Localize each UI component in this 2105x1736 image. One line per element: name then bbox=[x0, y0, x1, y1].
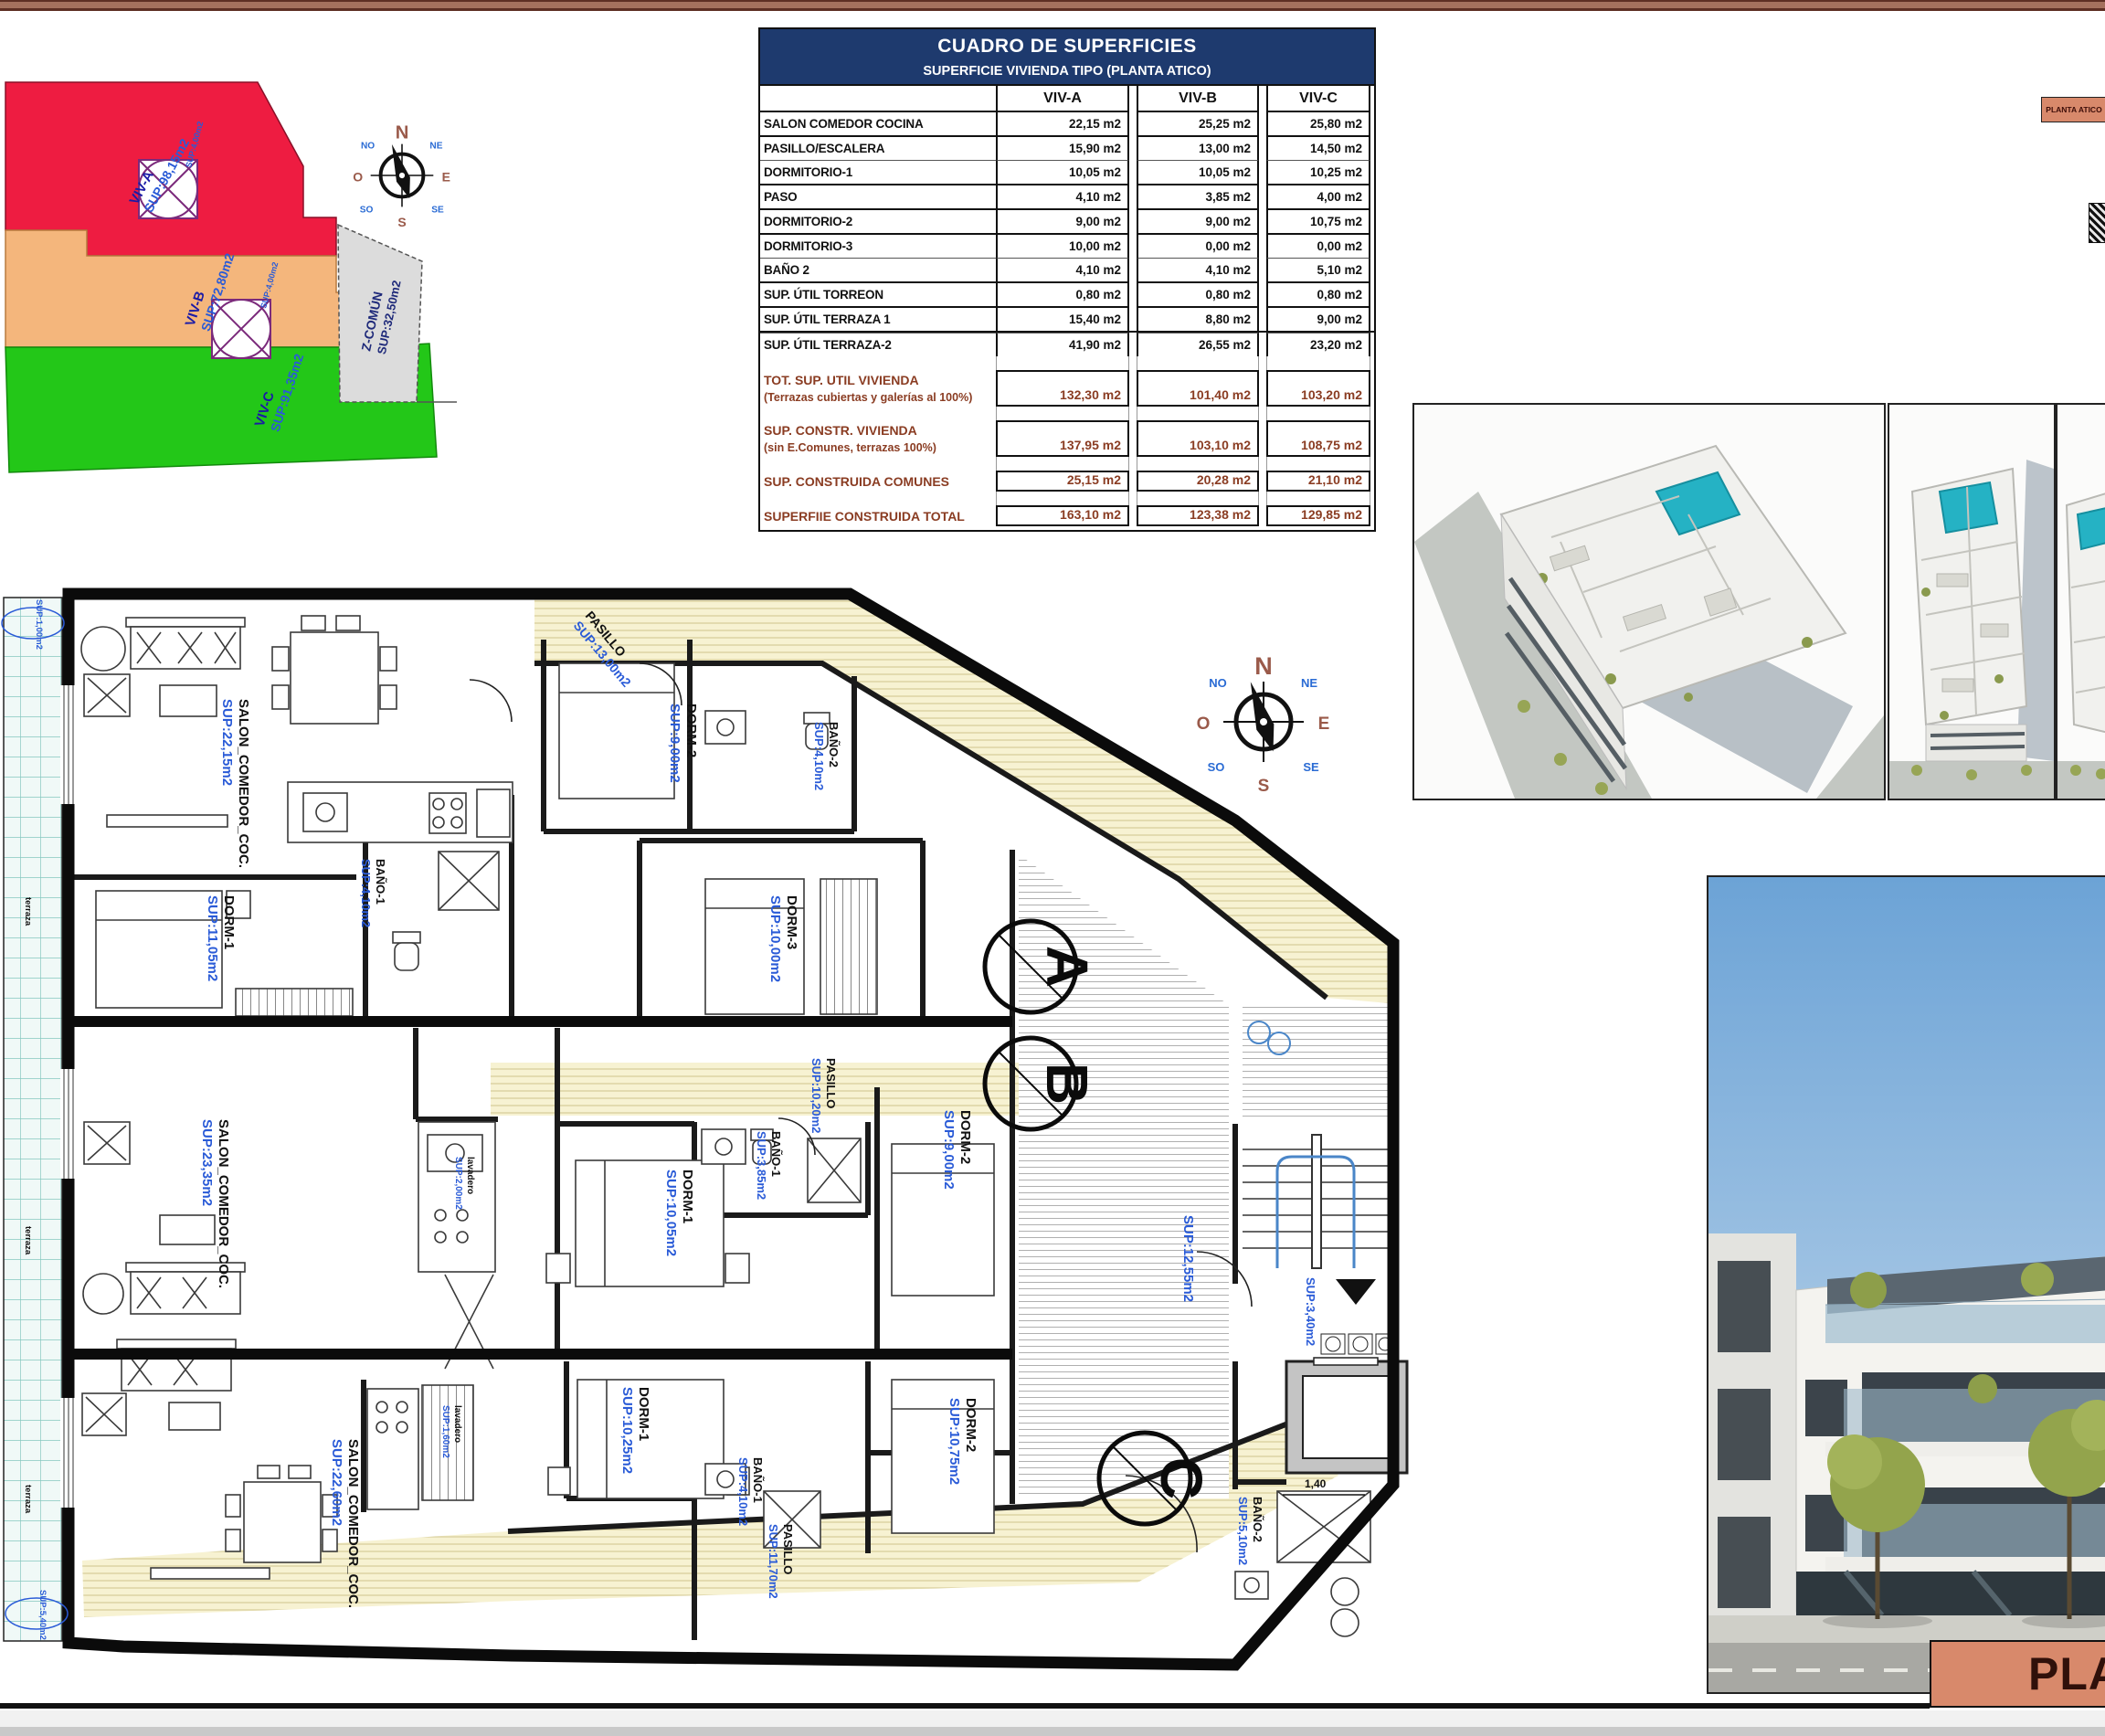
table-row: SALON COMEDOR COCINA22,15 m225,25 m225,8… bbox=[760, 111, 1374, 135]
room-sup: SUP:10,00m2 bbox=[767, 895, 783, 982]
room-sup: SUP:10,75m2 bbox=[947, 1398, 962, 1485]
table-subtitle: SUPERFICIE VIVIENDA TIPO (PLANTA ATICO) bbox=[764, 64, 1370, 79]
room-name: BAÑO-1 bbox=[751, 1457, 765, 1503]
compass-s: S bbox=[1258, 777, 1270, 796]
storefront bbox=[1796, 1572, 2105, 1615]
render-aerial-3-art bbox=[2057, 405, 2105, 799]
summary-val-a: 137,95 m2 bbox=[996, 420, 1129, 457]
row-val-c: 4,00 m2 bbox=[1266, 184, 1370, 208]
summary-val-b: 103,10 m2 bbox=[1137, 420, 1259, 457]
row-val-c: 0,80 m2 bbox=[1266, 281, 1370, 306]
site-key-plan: VIV-A SUP:98,15m2 VIV-B SUP:72,80m2 VIV-… bbox=[0, 73, 512, 484]
terraza-label: terraza bbox=[23, 1226, 33, 1255]
compass-e: E bbox=[442, 169, 450, 184]
room-sup: SUP:11,05m2 bbox=[205, 895, 220, 981]
table-spacer bbox=[760, 457, 1374, 471]
render-aerial-2-art bbox=[1889, 405, 2054, 799]
room-name: BAÑO-2 bbox=[827, 722, 841, 767]
row-val-b: 0,00 m2 bbox=[1137, 233, 1259, 258]
terraza-label: terraza bbox=[23, 897, 33, 926]
room-sup: SUP:22,15m2 bbox=[219, 699, 235, 786]
compass-ne: NE bbox=[429, 141, 442, 151]
stair-down-arrow-icon bbox=[1336, 1279, 1376, 1305]
elevator-door bbox=[1314, 1358, 1378, 1365]
marker-b: B bbox=[1034, 1063, 1100, 1105]
room-sup: SUP:22,60m2 bbox=[329, 1439, 344, 1526]
row-label: DORMITORIO-1 bbox=[760, 160, 996, 184]
room-sup: SUP:2,00m2 bbox=[453, 1157, 463, 1210]
marker-a: A bbox=[1034, 946, 1100, 988]
table-spacer bbox=[760, 407, 1374, 420]
room-sup: SUP:10,25m2 bbox=[619, 1387, 635, 1474]
room-name: BAÑO-1 bbox=[374, 859, 387, 905]
table-title: CUADRO DE SUPERFICIES bbox=[764, 36, 1370, 58]
hatch-legend-chip bbox=[2089, 203, 2105, 243]
summary-label: SUPERFIIE CONSTRUIDA TOTAL bbox=[760, 505, 996, 526]
compass-so: SO bbox=[1208, 760, 1225, 774]
bottom-rule bbox=[0, 1703, 1930, 1709]
summary-val-a: 25,15 m2 bbox=[996, 471, 1129, 492]
row-val-a: 10,00 m2 bbox=[996, 233, 1129, 258]
row-val-b: 26,55 m2 bbox=[1137, 333, 1259, 356]
col-viv-b: VIV-B bbox=[1137, 86, 1259, 111]
summary-label-main: SUP. CONSTR. VIVIENDA bbox=[764, 423, 917, 438]
row-val-b: 9,00 m2 bbox=[1137, 208, 1259, 233]
summary-val-c: 103,20 m2 bbox=[1266, 370, 1370, 407]
row-val-a: 4,10 m2 bbox=[996, 184, 1129, 208]
room-sup: SUP:11,70m2 bbox=[767, 1524, 780, 1599]
room-name: BAÑO-1 bbox=[769, 1131, 783, 1177]
terrace-sup: SUP:5,40m2 bbox=[37, 1590, 48, 1640]
table-row: BAÑO 24,10 m24,10 m25,10 m2 bbox=[760, 258, 1374, 281]
compass-se: SE bbox=[431, 206, 444, 216]
terrace-sup: SUP:1,00m2 bbox=[34, 599, 44, 650]
surfaces-table: CUADRO DE SUPERFICIES SUPERFICIE VIVIEND… bbox=[758, 27, 1376, 532]
row-val-c: 23,20 m2 bbox=[1266, 333, 1370, 356]
row-val-c: 10,75 m2 bbox=[1266, 208, 1370, 233]
summary-val-b: 123,38 m2 bbox=[1137, 505, 1259, 526]
room-sup: SUP:9,00m2 bbox=[941, 1110, 957, 1190]
room-sup: SUP:10,20m2 bbox=[809, 1058, 823, 1133]
col-viv-a: VIV-A bbox=[996, 86, 1129, 111]
glass-rail bbox=[1825, 1305, 2105, 1343]
table-row: PASO4,10 m23,85 m24,00 m2 bbox=[760, 184, 1374, 208]
room-sup: SUP:4,10m2 bbox=[812, 722, 826, 790]
summary-val-a: 163,10 m2 bbox=[996, 505, 1129, 526]
room-name: SALON_COMEDOR_COC. bbox=[216, 1119, 231, 1288]
top-border-bar bbox=[0, 0, 2105, 11]
shower-dimension: 1,40 bbox=[1305, 1477, 1327, 1490]
compass-se: SE bbox=[1303, 760, 1319, 774]
room-name: BAÑO-2 bbox=[1251, 1497, 1264, 1542]
render-facade bbox=[1707, 875, 2105, 1694]
table-summary-row: SUP. CONSTR. VIVIENDA(sin E.Comunes, ter… bbox=[760, 420, 1374, 457]
col-viv-c: VIV-C bbox=[1266, 86, 1370, 111]
table-row: DORMITORIO-110,05 m210,05 m210,25 m2 bbox=[760, 160, 1374, 184]
compass-ne: NE bbox=[1301, 676, 1317, 690]
room-name: SALON_COMEDOR_COC. bbox=[236, 699, 251, 868]
table-summary-row: SUPERFIIE CONSTRUIDA TOTAL 163,10 m2 123… bbox=[760, 505, 1374, 526]
compass-n: N bbox=[396, 122, 409, 143]
table-spacer bbox=[760, 492, 1374, 505]
furniture-unit-a bbox=[81, 616, 877, 1016]
row-val-c: 10,25 m2 bbox=[1266, 160, 1370, 184]
compass-n: N bbox=[1254, 652, 1273, 680]
elevator-cab bbox=[1303, 1376, 1391, 1458]
render-aerial-2 bbox=[1888, 403, 2056, 800]
table-header: CUADRO DE SUPERFICIES SUPERFICIE VIVIEND… bbox=[760, 29, 1374, 86]
marker-c: C bbox=[1148, 1457, 1214, 1499]
row-val-a: 22,15 m2 bbox=[996, 111, 1129, 135]
area-sup: SUP:3,40m2 bbox=[1304, 1277, 1317, 1346]
compass-o: O bbox=[353, 169, 363, 184]
row-val-c: 0,00 m2 bbox=[1266, 233, 1370, 258]
row-val-a: 4,10 m2 bbox=[996, 258, 1129, 281]
row-label: DORMITORIO-3 bbox=[760, 233, 996, 258]
table-spacer bbox=[760, 356, 1374, 370]
ac-units bbox=[1321, 1334, 1394, 1354]
row-val-a: 41,90 m2 bbox=[996, 333, 1129, 356]
render-aerial-1-art bbox=[1414, 405, 1884, 799]
site-compass-icon: N S E O NE SE SO NO bbox=[353, 122, 450, 229]
row-val-a: 10,05 m2 bbox=[996, 160, 1129, 184]
table-column-header: VIV-A VIV-B VIV-C bbox=[760, 86, 1374, 111]
compass-no: NO bbox=[361, 141, 375, 151]
summary-val-c: 21,10 m2 bbox=[1266, 471, 1370, 492]
row-val-a: 15,90 m2 bbox=[996, 135, 1129, 160]
compass-s: S bbox=[397, 215, 406, 229]
room-sup: SUP:4,10m2 bbox=[359, 859, 373, 927]
summary-val-a: 132,30 m2 bbox=[996, 370, 1129, 407]
row-val-b: 10,05 m2 bbox=[1137, 160, 1259, 184]
table-row: SUP. ÚTIL TORREON0,80 m20,80 m20,80 m2 bbox=[760, 281, 1374, 306]
room-sup: SUP:9,00m2 bbox=[667, 704, 682, 783]
row-val-c: 5,10 m2 bbox=[1266, 258, 1370, 281]
room-name: PASILLO bbox=[824, 1058, 838, 1108]
row-label: SUP. ÚTIL TORREON bbox=[760, 281, 996, 306]
summary-val-b: 101,40 m2 bbox=[1137, 370, 1259, 407]
plan-compass-icon: N S E O NE SE SO NO bbox=[1197, 652, 1330, 796]
terraza-label: terraza bbox=[23, 1485, 33, 1514]
row-label: PASO bbox=[760, 184, 996, 208]
table-row: DORMITORIO-310,00 m20,00 m20,00 m2 bbox=[760, 233, 1374, 258]
row-label: DORMITORIO-2 bbox=[760, 208, 996, 233]
table-row: PASILLO/ESCALERA15,90 m213,00 m214,50 m2 bbox=[760, 135, 1374, 160]
summary-label-sub: (sin E.Comunes, terrazas 100%) bbox=[764, 441, 936, 454]
row-val-b: 8,80 m2 bbox=[1137, 306, 1259, 331]
room-name: DORM-2 bbox=[963, 1398, 978, 1452]
room-name: DORM-3 bbox=[784, 895, 799, 949]
row-val-a: 9,00 m2 bbox=[996, 208, 1129, 233]
room-name: lavadero bbox=[465, 1157, 475, 1194]
summary-label-sub: (Terrazas cubiertas y galerías al 100%) bbox=[764, 391, 972, 404]
summary-label: SUP. CONSTR. VIVIENDA(sin E.Comunes, ter… bbox=[760, 420, 996, 457]
room-name: DORM-1 bbox=[636, 1387, 651, 1441]
room-sup: SUP:23,35m2 bbox=[199, 1119, 215, 1206]
row-val-b: 0,80 m2 bbox=[1137, 281, 1259, 306]
table-row: SUP. ÚTIL TERRAZA-241,90 m226,55 m223,20… bbox=[760, 331, 1374, 356]
summary-label-main: TOT. SUP. UTIL VIVIENDA bbox=[764, 373, 919, 387]
corridor-mid bbox=[491, 1063, 1064, 1116]
corner-plan-tag: PLANTA ATICO bbox=[2041, 97, 2105, 122]
room-name: DORM-1 bbox=[680, 1170, 695, 1223]
room-name: DORM-1 bbox=[221, 895, 237, 949]
summary-label: TOT. SUP. UTIL VIVIENDA(Terrazas cubiert… bbox=[760, 370, 996, 407]
row-label: PASILLO/ESCALERA bbox=[760, 135, 996, 160]
floor-plan: SALON_COMEDOR_COC.SUP:22,15m2 DORM-1SUP:… bbox=[0, 576, 1434, 1672]
row-label: SALON COMEDOR COCINA bbox=[760, 111, 996, 135]
row-val-a: 15,40 m2 bbox=[996, 306, 1129, 331]
room-name: DORM-2 bbox=[683, 704, 699, 757]
plan-sheet: { "page": { "sheet_title": "PLA", "corne… bbox=[0, 0, 2105, 1736]
row-val-b: 3,85 m2 bbox=[1137, 184, 1259, 208]
room-sup: SUP:10,05m2 bbox=[663, 1170, 679, 1256]
site-zones bbox=[5, 82, 457, 472]
row-val-c: 14,50 m2 bbox=[1266, 135, 1370, 160]
room-sup: SUP:3,85m2 bbox=[755, 1131, 768, 1200]
room-sup: SUP:4,10m2 bbox=[736, 1457, 750, 1526]
sheet-title-box: PLA bbox=[1930, 1640, 2105, 1708]
render-facade-art bbox=[1708, 877, 2105, 1692]
row-val-c: 25,80 m2 bbox=[1266, 111, 1370, 135]
row-val-b: 4,10 m2 bbox=[1137, 258, 1259, 281]
compass-o: O bbox=[1197, 715, 1211, 734]
compass-no: NO bbox=[1209, 676, 1227, 690]
row-val-b: 25,25 m2 bbox=[1137, 111, 1259, 135]
room-sup: SUP:5,10m2 bbox=[1236, 1497, 1250, 1565]
row-val-b: 13,00 m2 bbox=[1137, 135, 1259, 160]
compass-so: SO bbox=[360, 206, 374, 216]
bottom-border-strip bbox=[0, 1710, 2105, 1736]
summary-label: SUP. CONSTRUIDA COMUNES bbox=[760, 471, 996, 492]
room-name: lavadero bbox=[452, 1405, 462, 1443]
row-label: SUP. ÚTIL TERRAZA 1 bbox=[760, 306, 996, 331]
room-name: PASILLO bbox=[781, 1524, 795, 1574]
table-row: DORMITORIO-29,00 m29,00 m210,75 m2 bbox=[760, 208, 1374, 233]
compass-e: E bbox=[1318, 715, 1330, 734]
table-summary-row: SUP. CONSTRUIDA COMUNES 25,15 m2 20,28 m… bbox=[760, 471, 1374, 492]
row-val-a: 0,80 m2 bbox=[996, 281, 1129, 306]
summary-val-c: 129,85 m2 bbox=[1266, 505, 1370, 526]
stair-rail bbox=[1312, 1135, 1321, 1268]
table-summary-row: TOT. SUP. UTIL VIVIENDA(Terrazas cubiert… bbox=[760, 370, 1374, 407]
summary-val-b: 20,28 m2 bbox=[1137, 471, 1259, 492]
row-val-c: 9,00 m2 bbox=[1266, 306, 1370, 331]
room-name: DORM-2 bbox=[957, 1110, 973, 1164]
row-label: BAÑO 2 bbox=[760, 258, 996, 281]
summary-val-c: 108,75 m2 bbox=[1266, 420, 1370, 457]
render-aerial-3 bbox=[2056, 403, 2105, 800]
table-row: SUP. ÚTIL TERRAZA 115,40 m28,80 m29,00 m… bbox=[760, 306, 1374, 331]
sheet-title-text: PLA bbox=[2028, 1647, 2105, 1700]
room-name: SALON_COMEDOR_COC. bbox=[345, 1439, 361, 1608]
area-sup: SUP:12,55m2 bbox=[1180, 1215, 1196, 1302]
row-label: SUP. ÚTIL TERRAZA-2 bbox=[760, 333, 996, 356]
render-aerial-1 bbox=[1412, 403, 1886, 800]
room-sup: SUP:1,60m2 bbox=[440, 1405, 450, 1458]
